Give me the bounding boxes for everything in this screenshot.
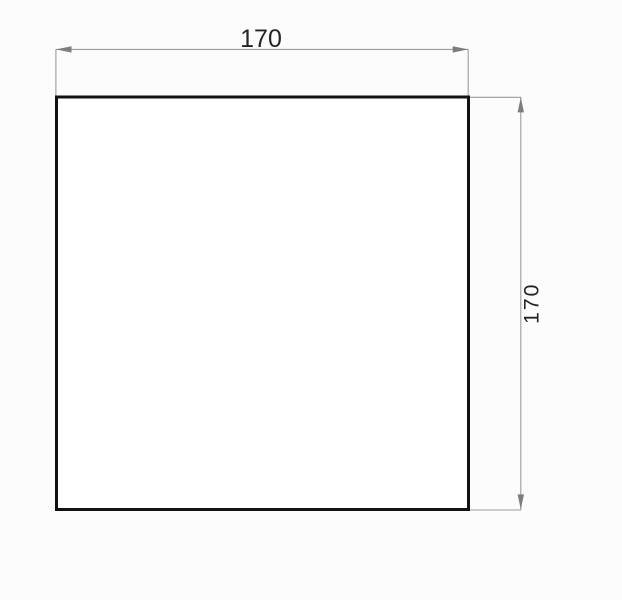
svg-text:170: 170 xyxy=(240,25,282,53)
svg-text:170: 170 xyxy=(520,285,544,325)
